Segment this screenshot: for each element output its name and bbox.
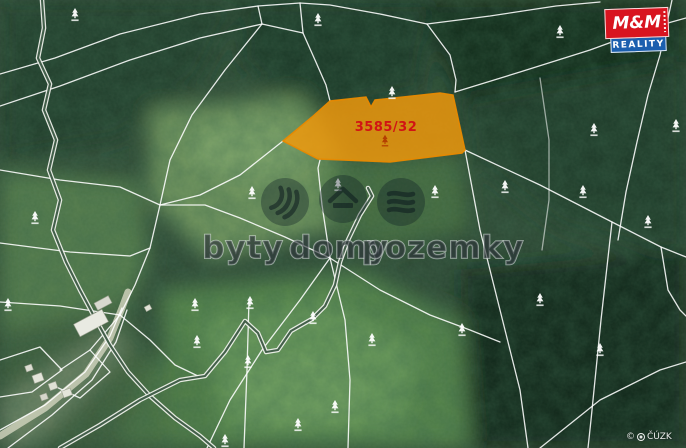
logo-red-box: M&M (604, 7, 669, 39)
watermark-word-byty: byty (202, 230, 283, 266)
map-screenshot: 3585/32 byty domy pozemky M&M (0, 0, 686, 448)
aerial-photo-map: 3585/32 byty domy pozemky (0, 0, 686, 448)
copyright-notice: © ČÚZK (626, 432, 672, 442)
copyright-text: ČÚZK (647, 432, 672, 442)
parcel-number-label: 3585/32 (355, 120, 418, 135)
watermark-word-pozemky: pozemky (362, 230, 525, 266)
grain-texture (0, 0, 686, 448)
cuzk-logo-icon (637, 433, 645, 441)
copyright-symbol: © (626, 432, 635, 442)
mm-reality-logo: M&M REALITY (604, 7, 671, 53)
logo-mm-text: M&M (612, 12, 661, 34)
logo-side-strip (663, 11, 666, 32)
